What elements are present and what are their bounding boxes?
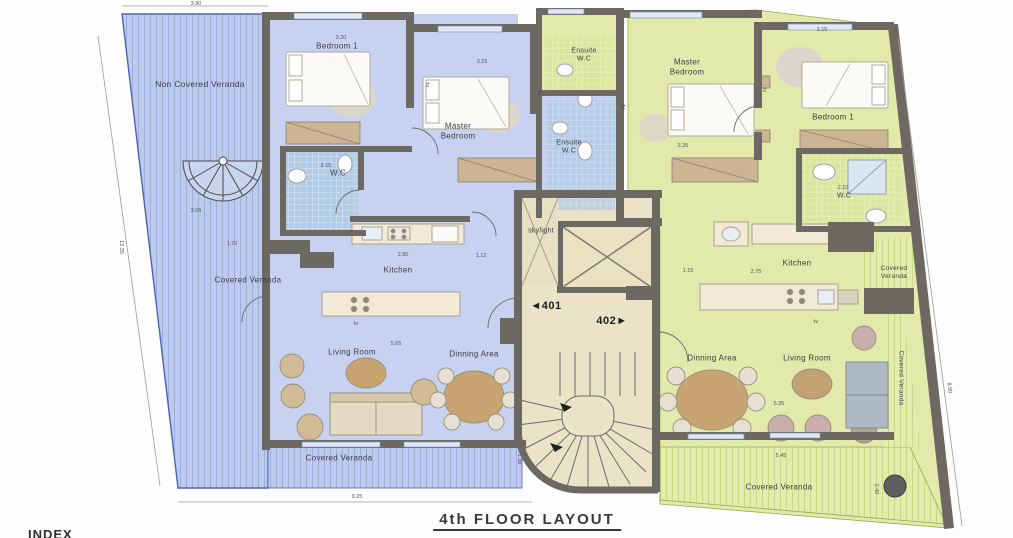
dim-3-05: 3.05 [191,208,202,214]
dim-5-65: 5.65 [391,341,402,347]
room-label-dinning-left: Dinning Area [449,350,498,359]
dim-8-50: 8.50 [945,382,952,393]
dim-3-90: 3.90 [191,1,202,7]
tv-label: tv [354,321,359,327]
room-label-ensuite-left: Ensuite W.C [556,140,581,157]
tv-label: tv [814,319,819,325]
dim-3-35: 3.35 [678,143,689,149]
dim-3-15-right: 3.15 [817,27,828,33]
room-label-covered-veranda-right-bottom: Covered Veranda [746,483,813,492]
dim-1-12: 1.12 [476,253,487,259]
room-label-kitchen-left: Kitchen [384,266,413,275]
floor-plan-page: Non Covered Veranda Bedroom 1 Master Bed… [0,0,1013,538]
floor-title: 4th FLOOR LAYOUT [433,511,621,531]
dim-2-10: 2.10 [838,185,849,191]
dim-9-25: 9.25 [352,494,363,500]
room-label-wc-left: W.C [330,169,346,178]
dim-5-35: 5.35 [774,401,785,407]
room-label-kitchen-right: Kitchen [783,259,812,268]
room-label-covered-veranda-right-edge: Covered Veranda [898,350,905,405]
tv-label: tv [761,88,767,93]
column [884,475,906,497]
room-label-living-right: Living Room [783,354,831,363]
dim-1-15: 1.15 [683,268,694,274]
dim-3-15-left: 3.15 [477,59,488,65]
room-label-master-left: Master Bedroom [441,121,476,140]
room-label-bedroom1-right: Bedroom 1 [812,113,854,122]
dim-1-70: 1.70 [227,241,238,247]
dim-3-20: 3.20 [336,35,347,41]
floor-plan-drawing [0,0,1013,538]
elevator [560,224,654,290]
room-label-dinning-right: Dinning Area [687,354,736,363]
unit-402-label: 402► [596,315,627,327]
dim-2-40: 2.40 [873,484,879,495]
room-label-ensuite-right: Ensuite W.C [571,48,596,65]
room-label-wc-right: W.C [837,193,851,200]
room-label-covered-veranda-left-bottom: Covered Veranda [306,454,373,463]
room-label-master-right: Master Bedroom [670,57,705,76]
room-label-bedroom1-left: Bedroom 1 [316,42,358,51]
dim-1-30: 1.30 [516,454,522,465]
dim-5-45: 5.45 [776,453,787,459]
dim-12-35: 12.35 [118,240,124,254]
room-label-living-left: Living Room [328,348,376,357]
room-label-non-covered-veranda: Non Covered Veranda [155,79,245,89]
tv-label: tv [620,105,626,110]
dim-2-15: 2.15 [321,163,332,169]
room-label-covered-veranda-right-small: Covered Veranda [881,265,908,281]
unit-401-label: ◄401 [530,300,561,312]
tv-label: tv [424,83,430,88]
room-label-skylight: skylight [528,228,554,235]
dim-2-75: 2.75 [751,269,762,275]
dim-2-80: 2.80 [398,252,409,258]
tv-label: tv [536,91,542,96]
index-label: INDEX [28,527,73,538]
room-label-covered-veranda-left-mid: Covered Veranda [215,276,282,285]
